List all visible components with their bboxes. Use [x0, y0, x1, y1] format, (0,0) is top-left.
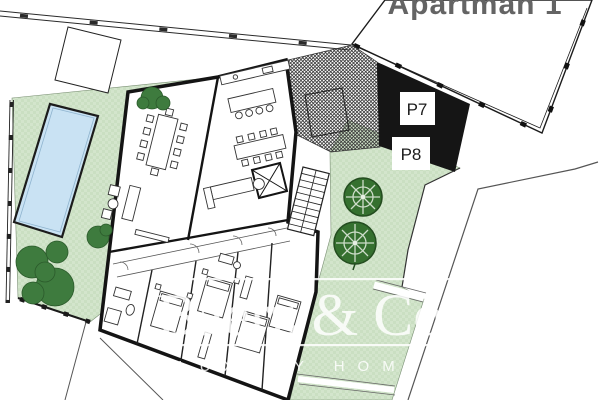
watermark-brand: Baerz & Co [157, 282, 444, 348]
external-staircase [288, 167, 330, 236]
building-footprint [100, 60, 318, 400]
ornamental-tree-icon [344, 178, 382, 216]
pool-deck [55, 27, 121, 93]
site-plan: Apartman 1 P7 P8 [0, 0, 600, 400]
watermark-tagline: LUXURY HOMES [178, 358, 453, 375]
parking-label-p7: P7 [407, 100, 428, 119]
parking-label-p8: P8 [401, 145, 422, 164]
watermark-rule-bottom [152, 344, 470, 346]
garden-fence-left [6, 100, 14, 303]
watermark-rule-top [170, 278, 458, 280]
road-boundary [0, 11, 351, 50]
property-line-bottom-left-b [65, 322, 86, 400]
watermark: Baerz & Co LUXURY HOMES [152, 278, 470, 375]
screenshot-root: Apartman 1 P7 P8 [0, 0, 600, 400]
plot-title: Apartman 1 [387, 0, 562, 21]
